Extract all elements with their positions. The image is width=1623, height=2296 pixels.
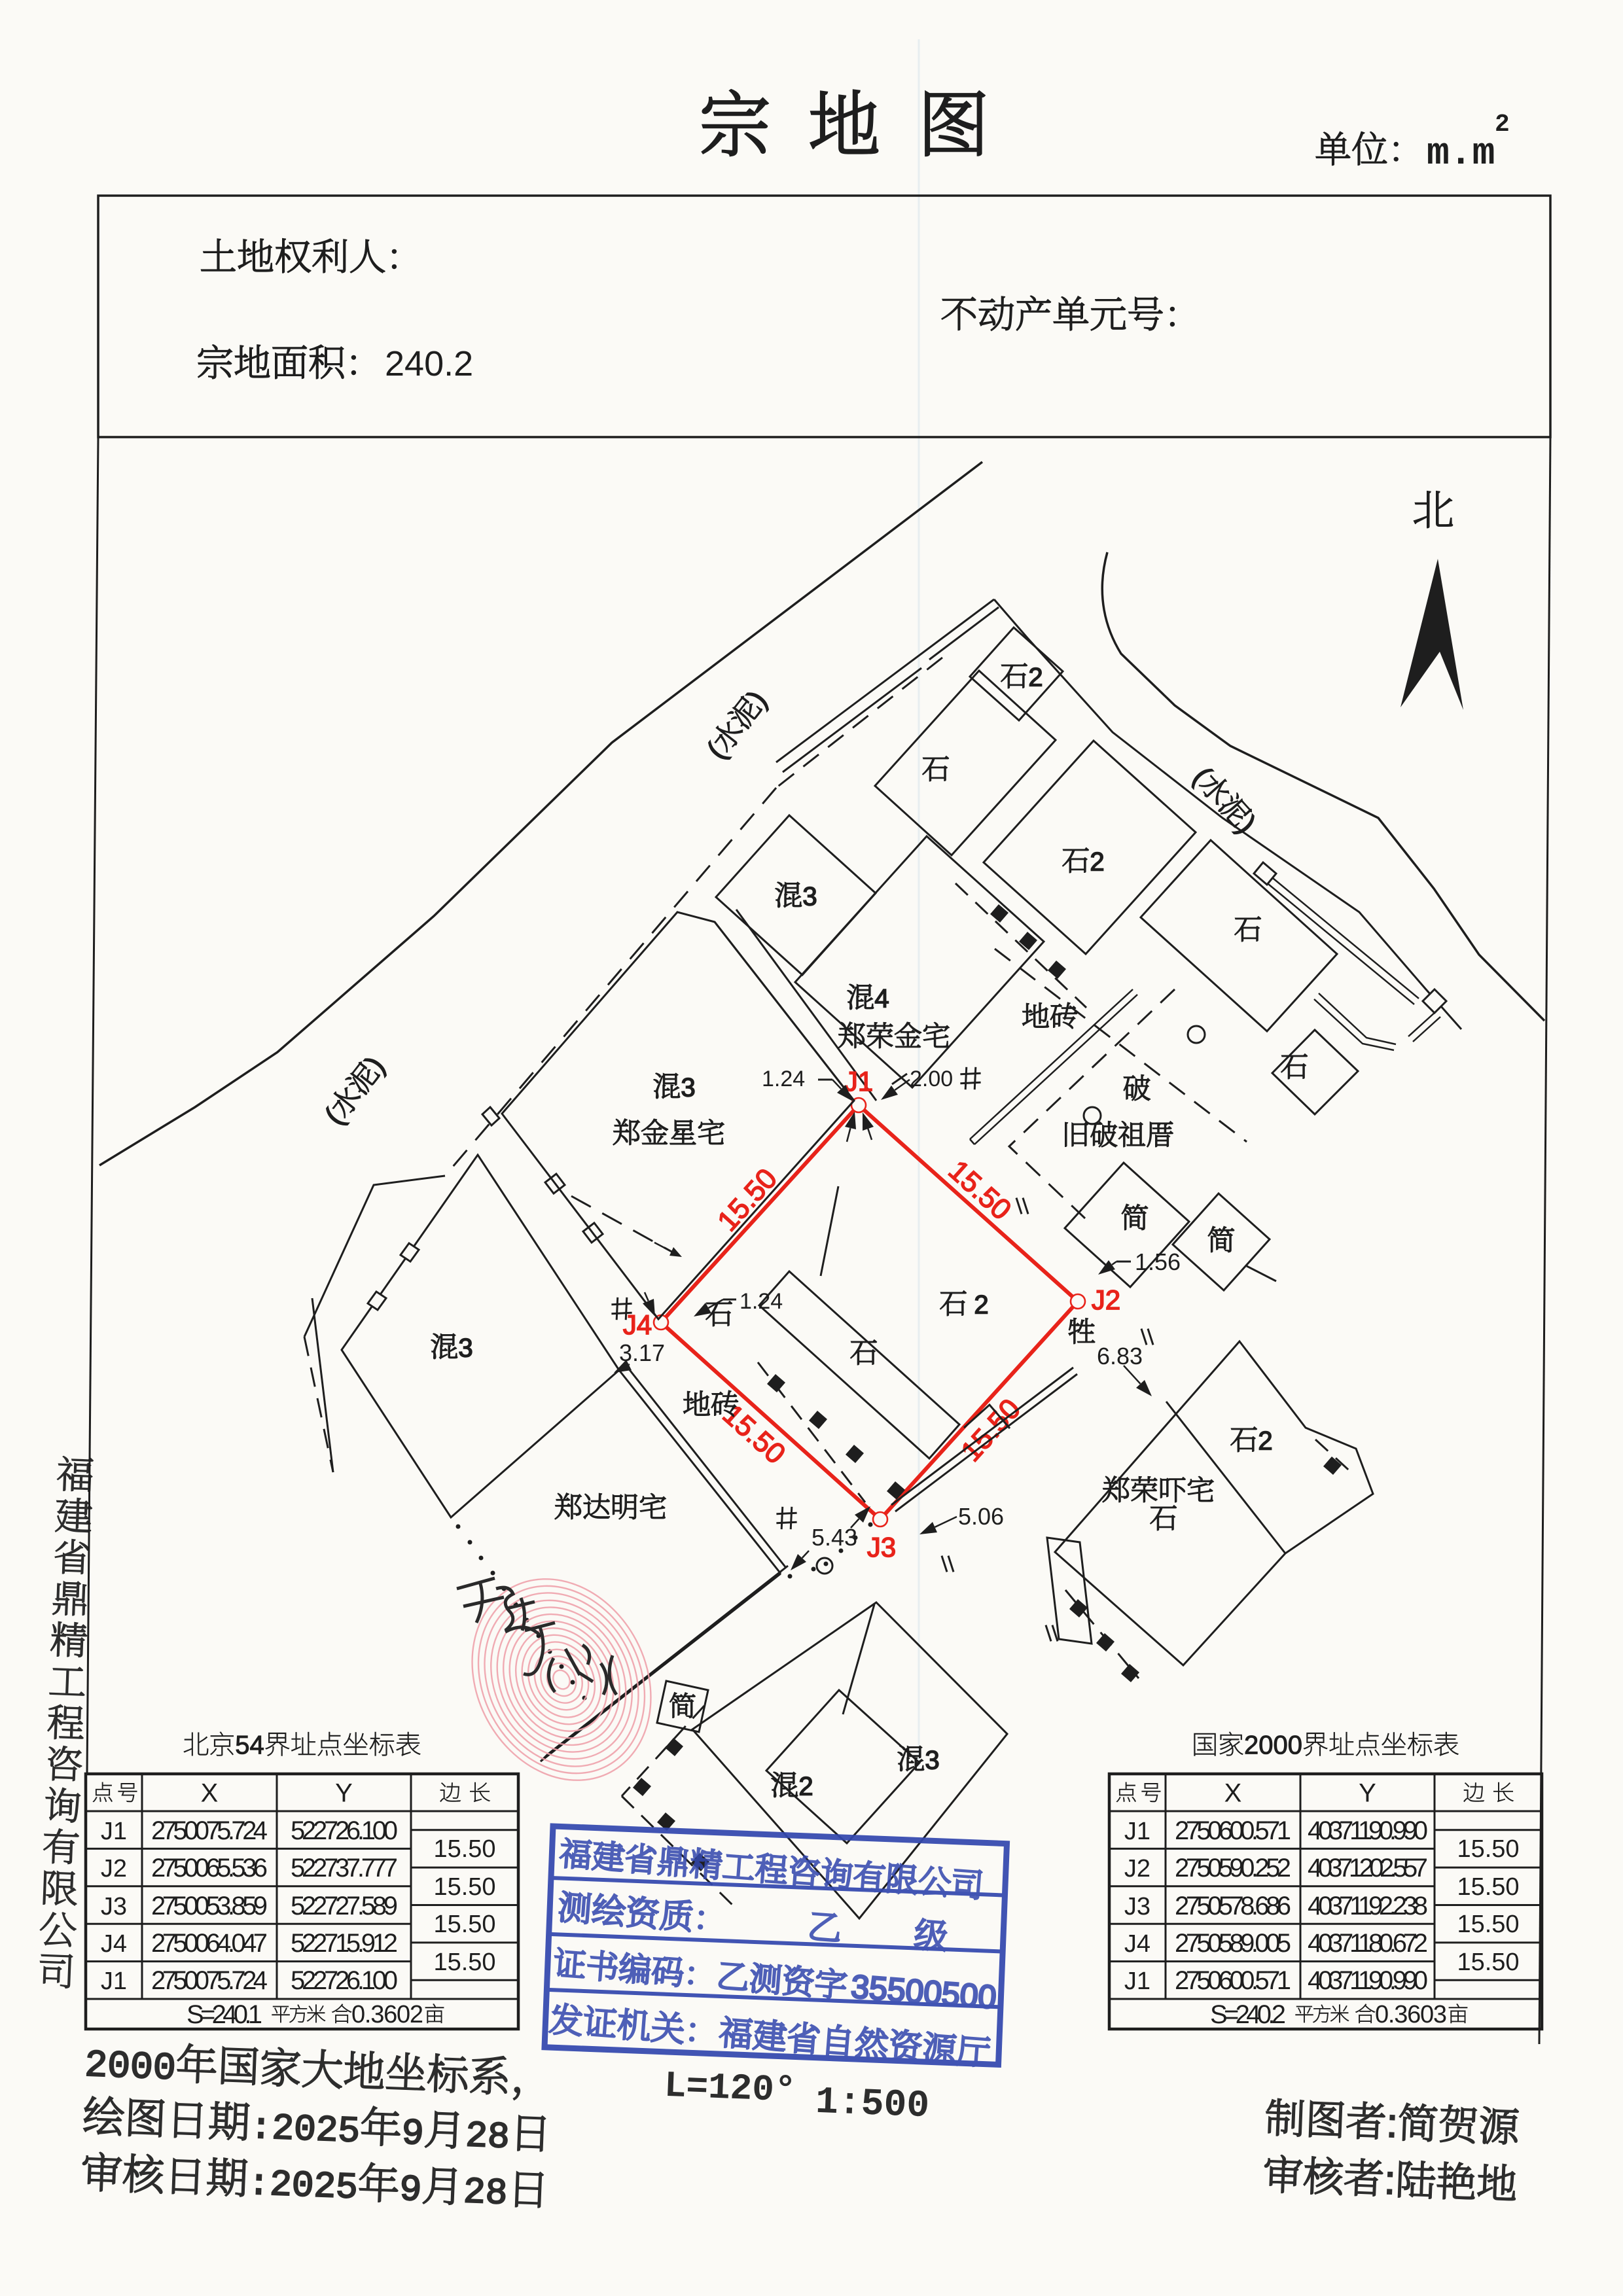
- svg-text:S=240.1: S=240.1: [187, 2000, 262, 2029]
- svg-text:15.50: 15.50: [1457, 1911, 1519, 1938]
- svg-text:2750065.536: 2750065.536: [151, 1854, 268, 1882]
- svg-text:15.50: 15.50: [433, 1911, 495, 1938]
- svg-text:40371192.238: 40371192.238: [1308, 1892, 1428, 1920]
- svg-text:2750589.005: 2750589.005: [1175, 1929, 1291, 1958]
- svg-text:J4: J4: [1124, 1930, 1150, 1958]
- svg-text:1.24: 1.24: [740, 1289, 783, 1314]
- svg-text:2750600.571: 2750600.571: [1175, 1966, 1291, 1995]
- svg-text:1.24: 1.24: [762, 1067, 805, 1091]
- svg-text:J4: J4: [101, 1930, 127, 1958]
- svg-text:15.50: 15.50: [1457, 1949, 1519, 1976]
- svg-text:J1: J1: [101, 1818, 127, 1845]
- svg-text:15.50: 15.50: [433, 1949, 495, 1976]
- svg-text:6.83: 6.83: [1097, 1343, 1143, 1369]
- svg-text:2750600.571: 2750600.571: [1175, 1816, 1291, 1845]
- svg-text:m.m: m.m: [1427, 133, 1495, 175]
- svg-text:40371190.990: 40371190.990: [1308, 1816, 1428, 1845]
- svg-text:2750053.859: 2750053.859: [151, 1892, 268, 1920]
- svg-text:15.50: 15.50: [1457, 1873, 1519, 1901]
- svg-text:5.06: 5.06: [958, 1503, 1004, 1530]
- svg-text:15.50: 15.50: [433, 1835, 495, 1863]
- svg-text:2750064.047: 2750064.047: [151, 1929, 268, 1958]
- svg-text:2750590.252: 2750590.252: [1175, 1854, 1291, 1882]
- svg-text:0.3602: 0.3602: [351, 2001, 423, 2028]
- svg-text:J3: J3: [1124, 1893, 1150, 1920]
- svg-text:15.50: 15.50: [433, 1873, 495, 1901]
- svg-text:2750075.724: 2750075.724: [151, 1966, 268, 1995]
- svg-text:J2: J2: [1124, 1855, 1150, 1882]
- svg-text:522727.589: 522727.589: [291, 1892, 398, 1920]
- svg-text:S=240.2: S=240.2: [1210, 2000, 1286, 2029]
- svg-text:2: 2: [1495, 111, 1510, 139]
- svg-text:Y: Y: [1359, 1779, 1376, 1808]
- svg-text:522737.777: 522737.777: [291, 1854, 398, 1882]
- svg-text:1.56: 1.56: [1135, 1248, 1181, 1275]
- svg-text:522726.100: 522726.100: [291, 1816, 398, 1845]
- svg-text:J2: J2: [101, 1855, 127, 1882]
- svg-text:2750578.686: 2750578.686: [1175, 1892, 1291, 1920]
- svg-text:15.50: 15.50: [1457, 1835, 1519, 1863]
- svg-text:40371202.557: 40371202.557: [1308, 1854, 1428, 1882]
- svg-text:2.00: 2.00: [910, 1067, 953, 1091]
- svg-text:240.2: 240.2: [385, 344, 473, 383]
- svg-text:Y: Y: [335, 1779, 353, 1808]
- svg-text:J1: J1: [1124, 1968, 1150, 1995]
- svg-text:L=120°: L=120°: [664, 2065, 797, 2112]
- svg-text:X: X: [201, 1779, 219, 1808]
- svg-text:X: X: [1224, 1779, 1242, 1808]
- svg-text:J1: J1: [101, 1968, 127, 1995]
- svg-text:5.43: 5.43: [811, 1524, 857, 1551]
- svg-text:40371180.672: 40371180.672: [1308, 1929, 1428, 1958]
- svg-text:J3: J3: [101, 1893, 127, 1920]
- svg-text:J1: J1: [1124, 1818, 1150, 1845]
- svg-text:1:500: 1:500: [815, 2081, 930, 2128]
- svg-text:522715.912: 522715.912: [291, 1929, 398, 1958]
- svg-text:2750075.724: 2750075.724: [151, 1816, 268, 1845]
- svg-text:40371190.990: 40371190.990: [1308, 1966, 1428, 1995]
- svg-text:0.3603: 0.3603: [1375, 2001, 1447, 2028]
- svg-text:522726.100: 522726.100: [291, 1966, 398, 1995]
